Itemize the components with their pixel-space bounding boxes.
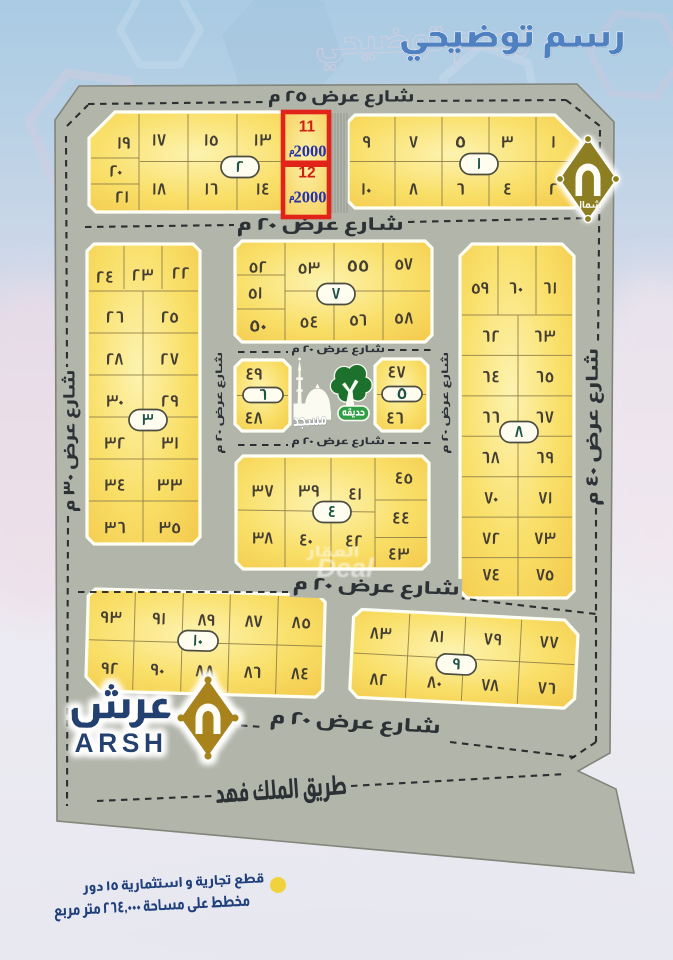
svg-text:ARSH: ARSH <box>74 728 167 758</box>
svg-text:2000: 2000 <box>294 188 327 207</box>
svg-text:2000: 2000 <box>294 142 327 161</box>
svg-text:12: 12 <box>298 165 315 182</box>
svg-text:11: 11 <box>299 119 316 136</box>
svg-text:Deal: Deal <box>316 553 374 583</box>
